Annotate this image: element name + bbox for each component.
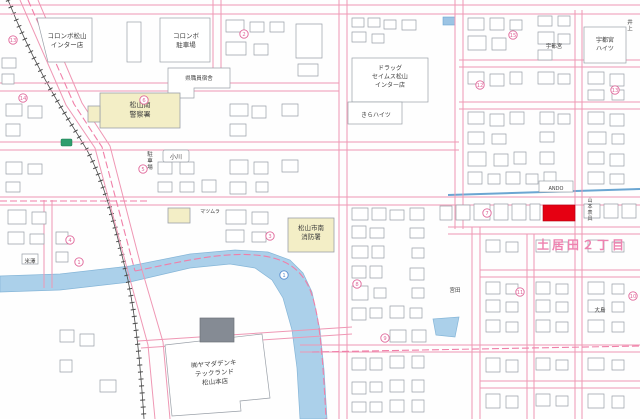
lot-number-marker: 13 (9, 36, 17, 44)
map-label-parking-vertical: 駐車場 (147, 150, 153, 171)
svg-text:6: 6 (142, 98, 145, 104)
lot-number-marker: 2 (240, 30, 248, 38)
lot-number-marker: 8 (353, 280, 361, 288)
svg-text:5: 5 (141, 167, 144, 173)
map-label-oshima: 大島 (594, 306, 606, 314)
map-label-miyata: 宮田 (449, 286, 460, 294)
police-station-wing (88, 106, 100, 122)
map-label-kira-heights: きらハイツ (361, 112, 391, 119)
lot-number-marker: 6 (140, 96, 148, 104)
lot-number-marker: 11 (516, 288, 524, 296)
svg-text:9: 9 (383, 336, 386, 342)
lot-number-marker: 4 (66, 236, 74, 244)
lot-number-marker: 1 (75, 258, 83, 266)
lot-number-marker: 5 (139, 165, 147, 173)
lot-number-marker: 7 (483, 209, 491, 217)
lot-number-marker: 3 (266, 232, 274, 240)
map-label-utsunomiya: 宇都宮 (546, 42, 563, 50)
map-canvas[interactable]: コロンボ松山インター店コロンボ駐車場県職員宿舎松山南警察署小川駐車場ドラッグセイ… (0, 0, 640, 419)
map-label-yonezawa: 米澤 (24, 257, 36, 265)
svg-text:11: 11 (517, 290, 524, 296)
map-label-ando: ANDO (549, 186, 564, 192)
svg-text:7: 7 (485, 211, 488, 217)
route-number-badge (61, 139, 72, 146)
map-label-inoue: 井上 (627, 18, 633, 33)
svg-text:1: 1 (77, 260, 80, 266)
lot-number-marker: 14 (19, 94, 27, 102)
svg-text:14: 14 (20, 96, 27, 102)
svg-text:2: 2 (242, 32, 245, 38)
colombo-parking-parcel (160, 18, 210, 62)
svg-text:15: 15 (510, 33, 517, 39)
map-label-yamamoto-hyogu: 山本表具 (587, 197, 592, 222)
map-label-matsumura: マツムラ (200, 209, 220, 215)
river-number-marker: 1 (280, 271, 288, 279)
lot-number-marker: 10 (629, 292, 637, 300)
blue-roof-building (443, 17, 455, 25)
svg-text:13: 13 (612, 88, 619, 94)
pond (433, 317, 459, 337)
lot-number-marker: 15 (509, 31, 517, 39)
lot-number-marker: 13 (611, 86, 619, 94)
map-label-colombo-parking: コロンボ駐車場 (173, 32, 200, 49)
building-block (440, 204, 636, 220)
svg-text:10: 10 (630, 294, 637, 300)
lot-number-marker: 9 (381, 334, 389, 342)
svg-text:3: 3 (268, 234, 271, 240)
map-label-pref-staff-housing: 県職員宿舎 (185, 74, 213, 82)
svg-text:12: 12 (477, 83, 484, 89)
svg-text:13: 13 (10, 38, 17, 44)
svg-text:8: 8 (355, 282, 358, 288)
small-yellow-building (168, 208, 190, 223)
map-label-district: 土居田２丁目 (537, 237, 627, 252)
lot-number-marker: 12 (476, 81, 484, 89)
map-label-ogawa: 小川 (170, 153, 182, 161)
dark-building (200, 318, 234, 342)
svg-text:1: 1 (282, 273, 285, 279)
highlighted-parcel[interactable] (543, 205, 575, 221)
tower-building (127, 22, 141, 62)
